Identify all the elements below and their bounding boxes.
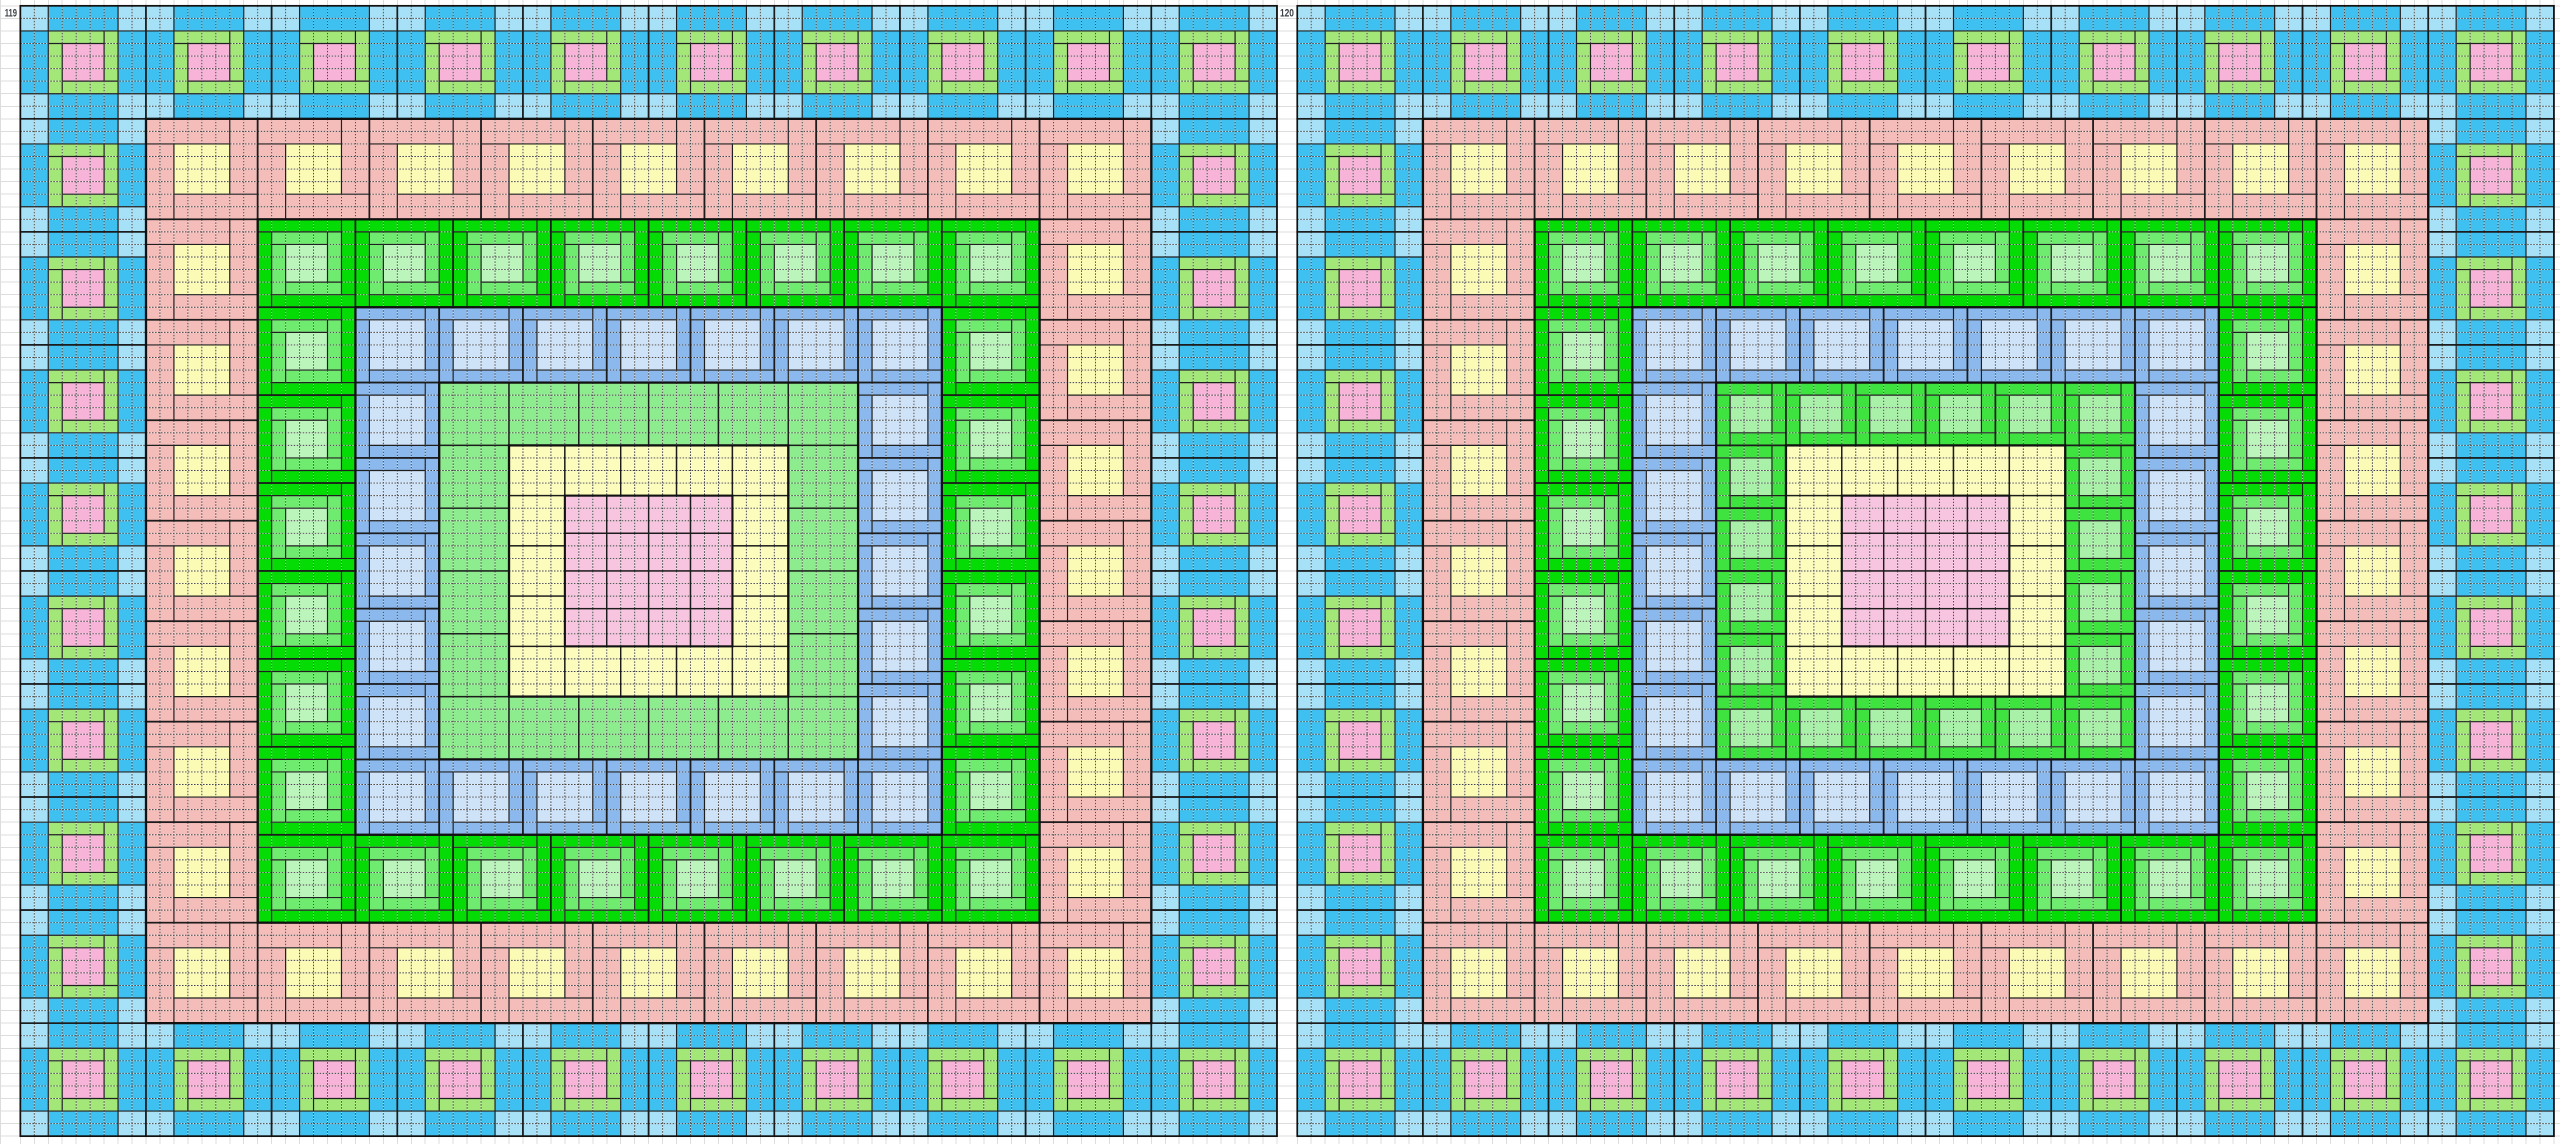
svg-text:119: 119 xyxy=(5,8,17,20)
svg-text:120: 120 xyxy=(1280,8,1294,20)
